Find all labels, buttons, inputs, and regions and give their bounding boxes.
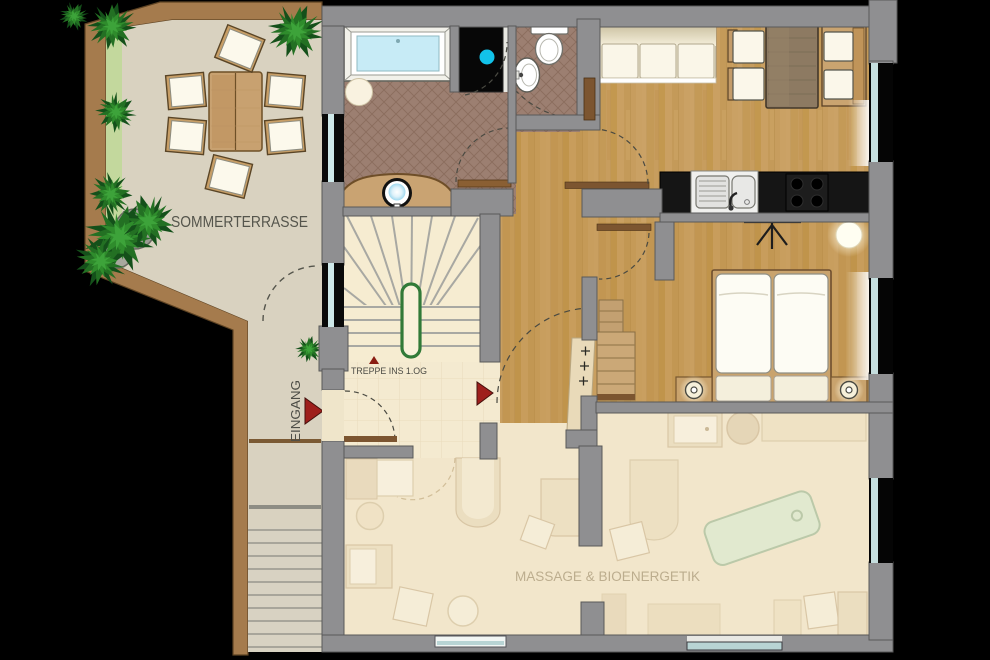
svg-text:EINGANG: EINGANG [289, 380, 303, 442]
svg-text:TREPPE INS 1.OG: TREPPE INS 1.OG [351, 366, 427, 377]
svg-text:SOMMERTERRASSE: SOMMERTERRASSE [171, 214, 308, 231]
svg-text:MASSAGE & BIOENERGETIK: MASSAGE & BIOENERGETIK [515, 569, 700, 584]
